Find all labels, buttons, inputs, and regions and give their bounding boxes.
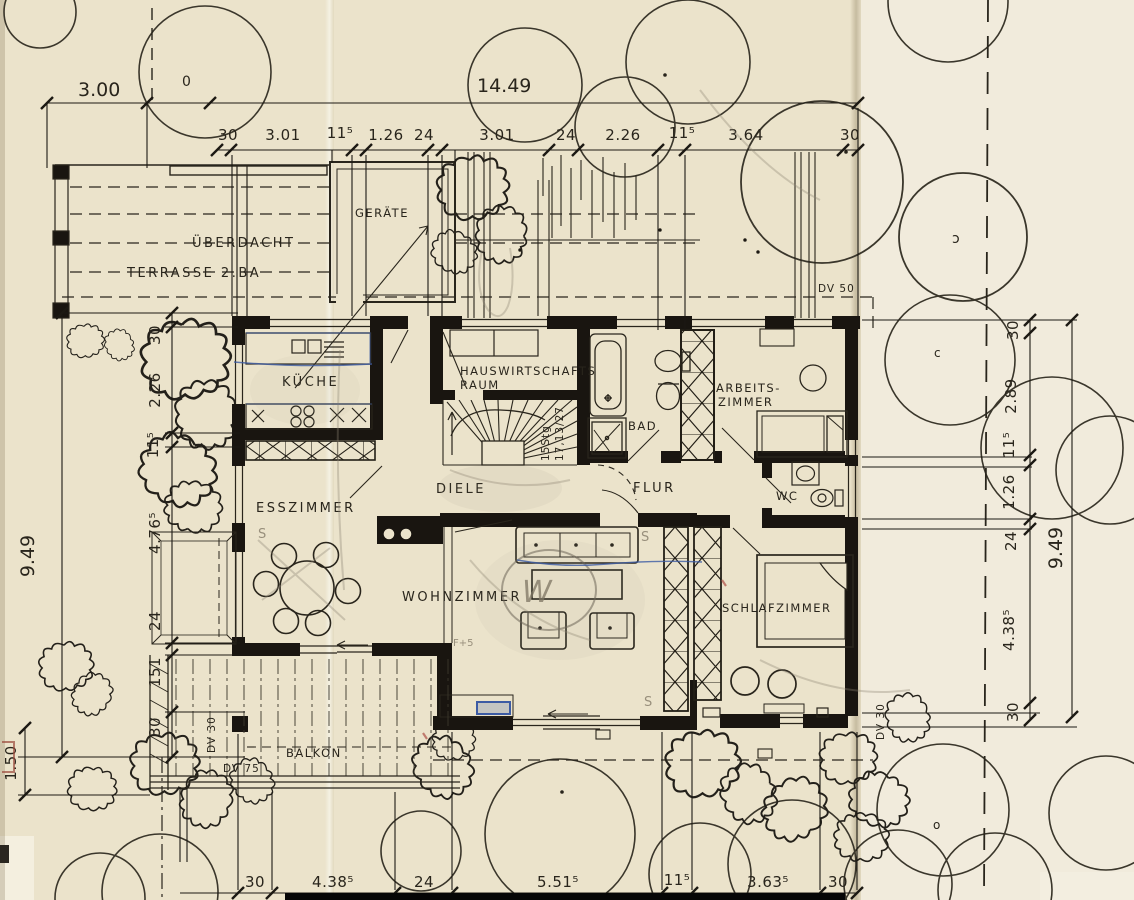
room-label-terrasse: TERRASSE 2.BA xyxy=(126,266,261,281)
scan-black-strip xyxy=(285,893,845,900)
dim-label: 11⁵ xyxy=(327,124,354,142)
annotation-dv30-balkon: DV 30 xyxy=(206,716,218,753)
floor-plan-scan: 0 ɔ c o xyxy=(0,0,1134,900)
dim-label: 11⁵ xyxy=(669,124,696,142)
pencil-note-s1: S xyxy=(258,527,266,542)
stairs-note-ratio: 17,13/27 xyxy=(554,406,566,461)
dim-label: 1.26 xyxy=(368,126,403,144)
floor-plan-drawing: 0 ɔ c o xyxy=(0,0,1134,900)
pencil-note-s3: S xyxy=(644,695,652,710)
dim-overall-left-side: 9.49 xyxy=(17,535,39,577)
dim-top: 3.00 14.49 30 3.01 11⁵ 1.26 24 3.01 24 2… xyxy=(41,75,864,330)
dim-label: 11⁵ xyxy=(664,871,691,889)
dim-label: 3.64 xyxy=(728,126,763,144)
dim-overall-left: 3.00 xyxy=(78,79,120,101)
stairs-note-steps: 15Stg xyxy=(540,425,552,461)
dim-label: 2.26 xyxy=(146,372,164,407)
room-label-geraete: GERÄTE xyxy=(355,205,409,220)
tree-mark: ɔ xyxy=(952,231,960,247)
terrace xyxy=(53,165,873,332)
dim-label: 30 xyxy=(245,873,265,891)
annotation-dv75: DV 75 xyxy=(223,763,260,775)
pencil-note-s2: S xyxy=(641,530,649,545)
dim-label: 5.51⁵ xyxy=(537,873,579,891)
dim-label: 4.38⁵ xyxy=(312,873,354,891)
dim-label: 24 xyxy=(1002,531,1020,551)
room-label-balkon: BALKON xyxy=(286,746,342,760)
floor-step-lines xyxy=(444,527,452,643)
dim-label: 30 xyxy=(1004,702,1022,722)
annotation-dv50: DV 50 xyxy=(818,283,855,295)
planting-box xyxy=(152,532,236,644)
room-label-flur: FLUR xyxy=(633,481,676,496)
room-label-hauswirtschaft-2: RAUM xyxy=(460,378,500,392)
dim-left-below: 1.50 xyxy=(2,745,20,780)
dim-overall-right-side: 9.49 xyxy=(1045,527,1067,569)
dim-label: 24 xyxy=(414,126,434,144)
room-label-wc: WC xyxy=(776,489,798,503)
room-label-schlafzimmer: SCHLAFZIMMER xyxy=(722,601,832,615)
dim-label: 30 xyxy=(840,126,860,144)
dim-label: 30 xyxy=(1004,320,1022,340)
dim-label: 30 xyxy=(146,325,164,345)
room-label-ueberdacht: ÜBERDACHT xyxy=(192,234,295,251)
bath-fixtures xyxy=(588,334,690,458)
room-label-arbeitszimmer-2: ZIMMER xyxy=(718,395,773,409)
tree-mark: c xyxy=(934,346,941,360)
dim-label: 3.63⁵ xyxy=(747,873,789,891)
annotation-dv30-wall: DV 30 xyxy=(875,703,887,740)
dim-label: 24 xyxy=(414,873,434,891)
dim-label: 11⁵ xyxy=(144,432,162,459)
dim-label: 1.26 xyxy=(1000,474,1018,509)
room-label-hauswirtschaft-1: HAUSWIRTSCHAFTS xyxy=(460,364,596,378)
dim-label: 3.01 xyxy=(479,126,514,144)
dim-label: 3.01 xyxy=(265,126,300,144)
dim-label: 11⁵ xyxy=(1000,432,1018,459)
dim-label: 24 xyxy=(146,611,164,631)
dim-label: 2.26 xyxy=(605,126,640,144)
dim-bottom: 30 4.38⁵ 24 5.51⁵ 11⁵ 3.63⁵ 30 xyxy=(180,732,863,899)
dim-label: 30 xyxy=(828,873,848,891)
tree-mark: o xyxy=(933,818,940,832)
pencil-note-f: F+5 xyxy=(453,638,474,649)
dim-label: 151 xyxy=(146,657,164,687)
dim-right: 9.49 30 2.89 11⁵ 1.26 24 4.38⁵ 30 xyxy=(862,314,1078,727)
room-label-bad: BAD xyxy=(628,419,657,433)
dim-overall-top: 14.49 xyxy=(477,75,531,97)
room-label-arbeitszimmer-1: ARBEITS- xyxy=(716,381,781,395)
wc-fixtures xyxy=(792,462,843,507)
dim-label: 30 xyxy=(146,717,164,737)
dim-label: 4.76⁵ xyxy=(146,512,164,554)
tree-mark: 0 xyxy=(182,74,191,90)
dim-label: 4.38⁵ xyxy=(1000,609,1018,651)
dim-label: 24 xyxy=(556,126,576,144)
room-label-esszimmer: ESSZIMMER xyxy=(256,501,356,516)
dim-label: 2.89 xyxy=(1002,378,1020,413)
dim-label: 30 xyxy=(218,126,238,144)
